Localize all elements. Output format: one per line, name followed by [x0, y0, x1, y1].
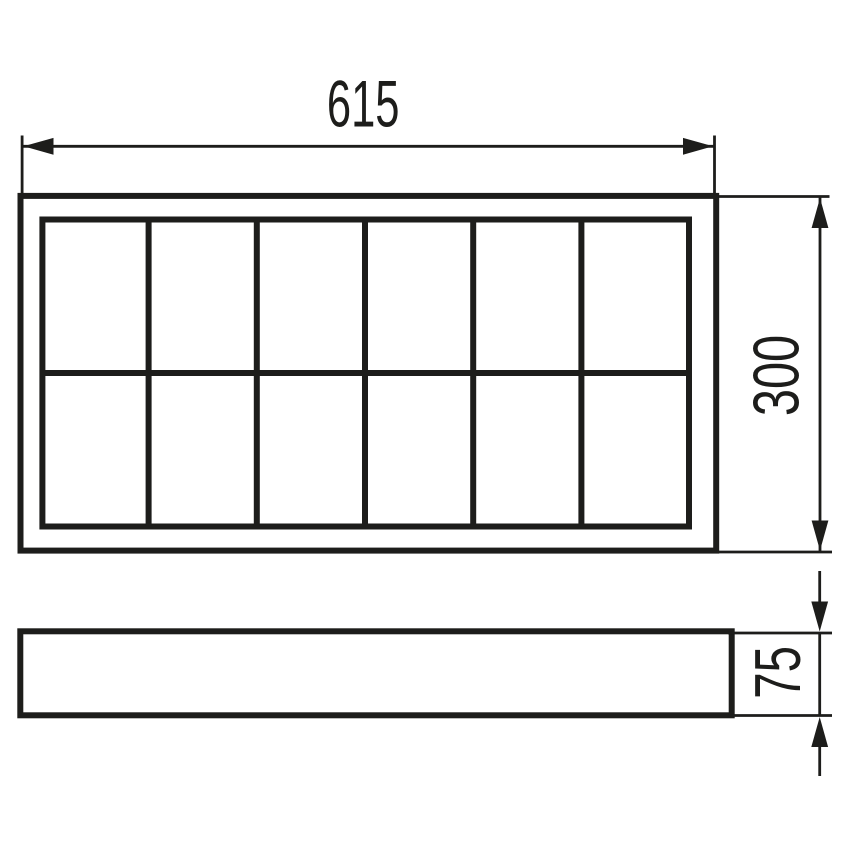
svg-text:615: 615 — [327, 66, 400, 140]
svg-text:300: 300 — [741, 335, 813, 416]
svg-text:75: 75 — [742, 646, 815, 699]
